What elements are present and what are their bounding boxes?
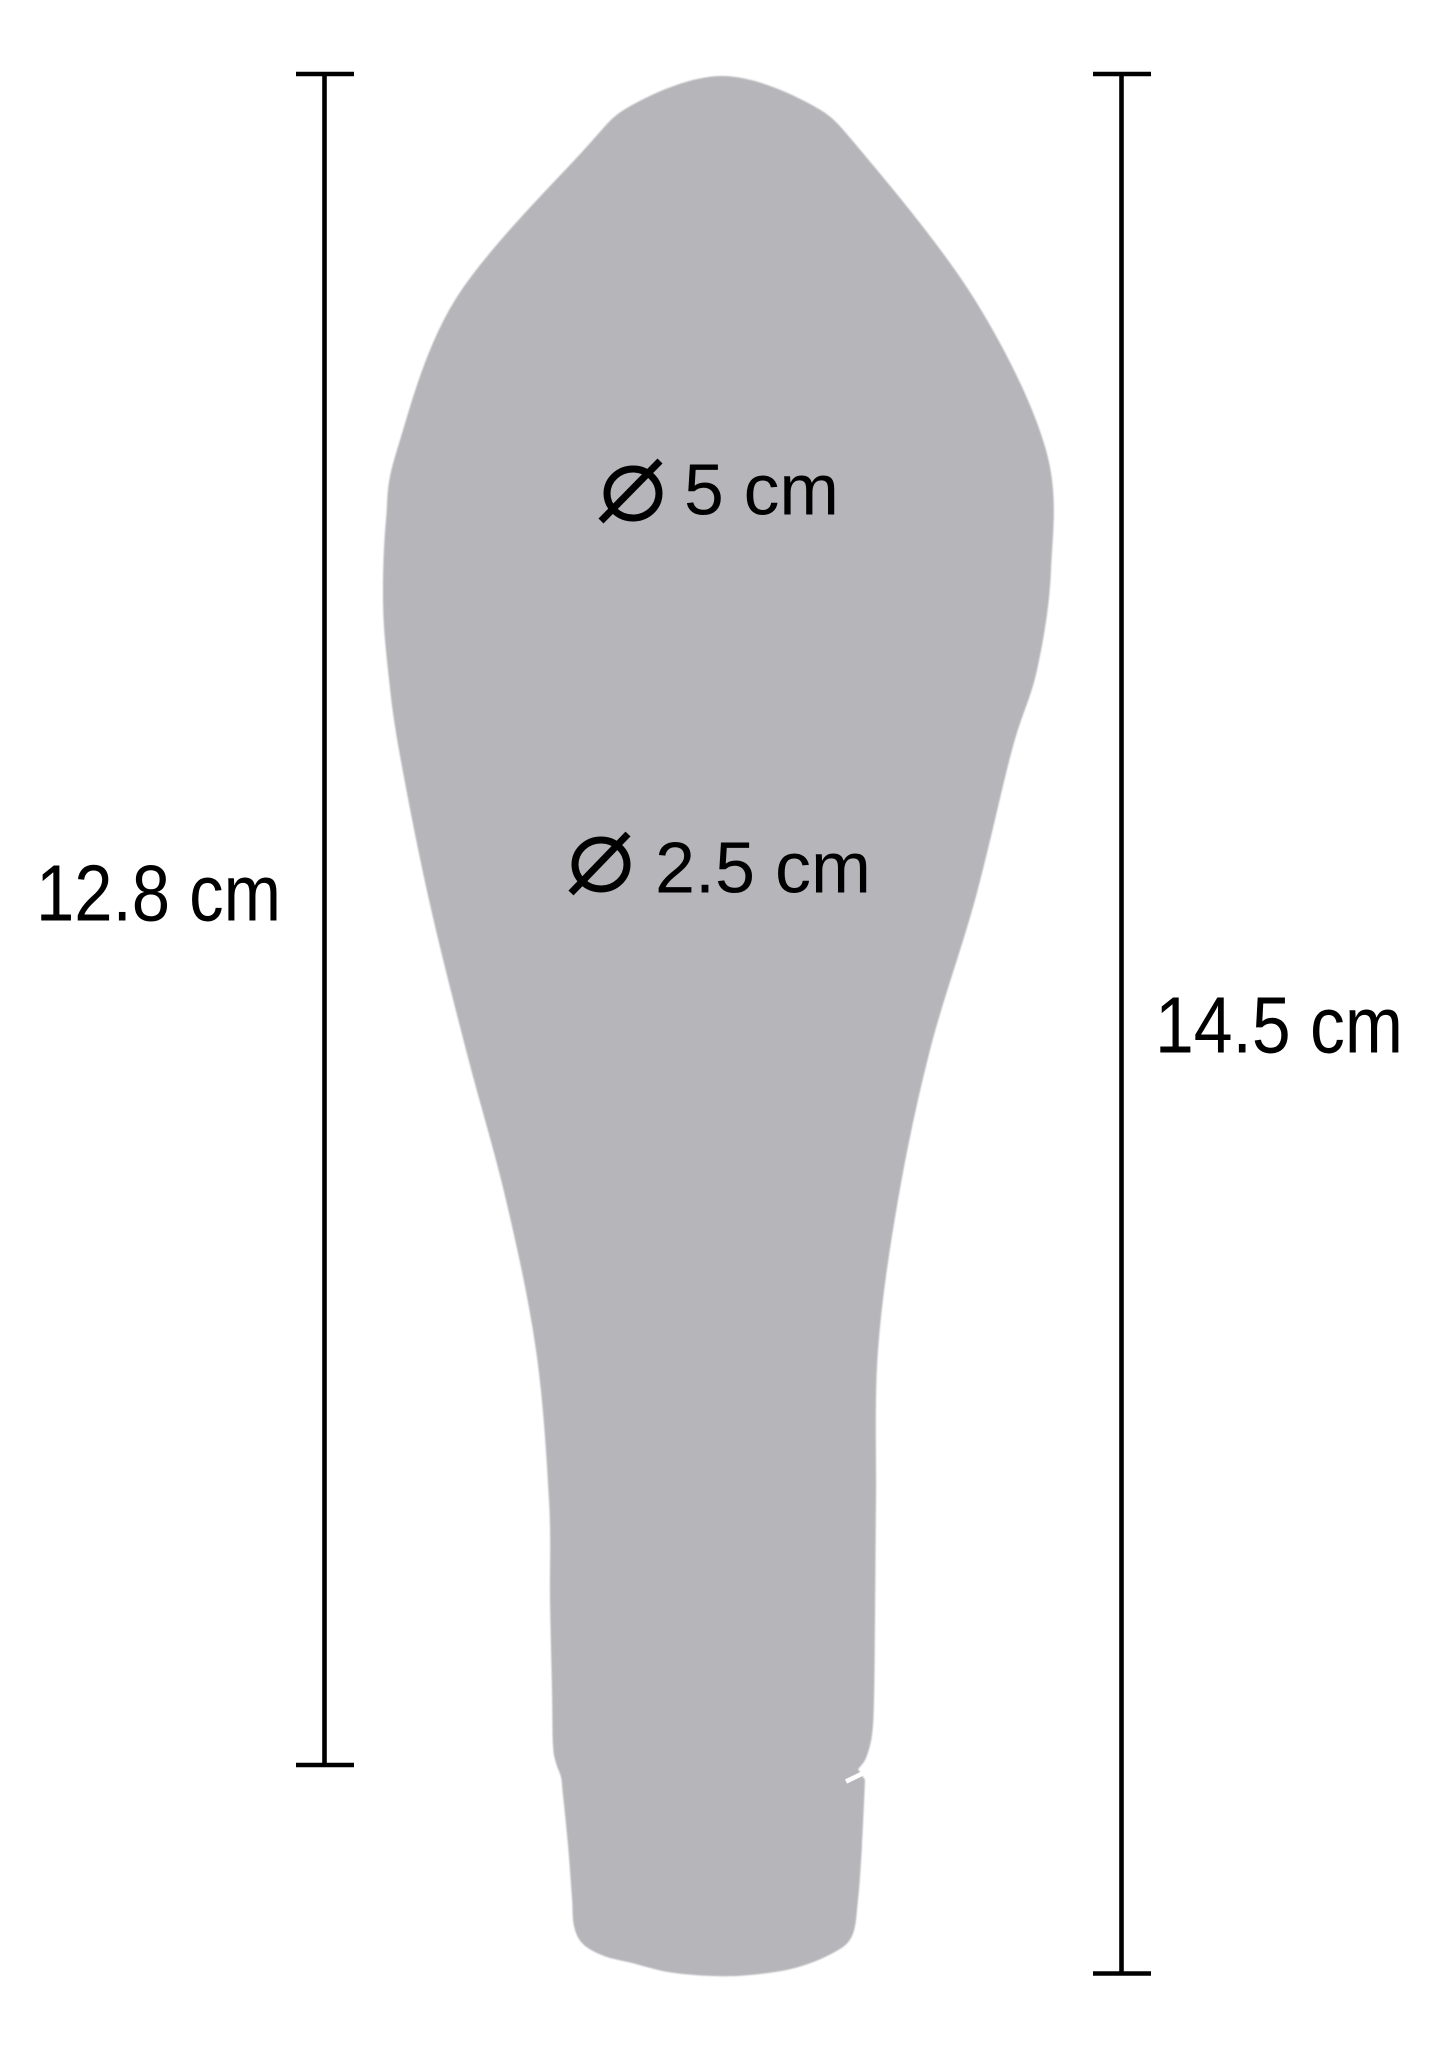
svg-text:12.8 cm: 12.8 cm — [36, 849, 281, 938]
svg-text:2.5 cm: 2.5 cm — [655, 829, 871, 909]
svg-text:14.5 cm: 14.5 cm — [1155, 981, 1403, 1070]
svg-text:5 cm: 5 cm — [684, 451, 839, 531]
